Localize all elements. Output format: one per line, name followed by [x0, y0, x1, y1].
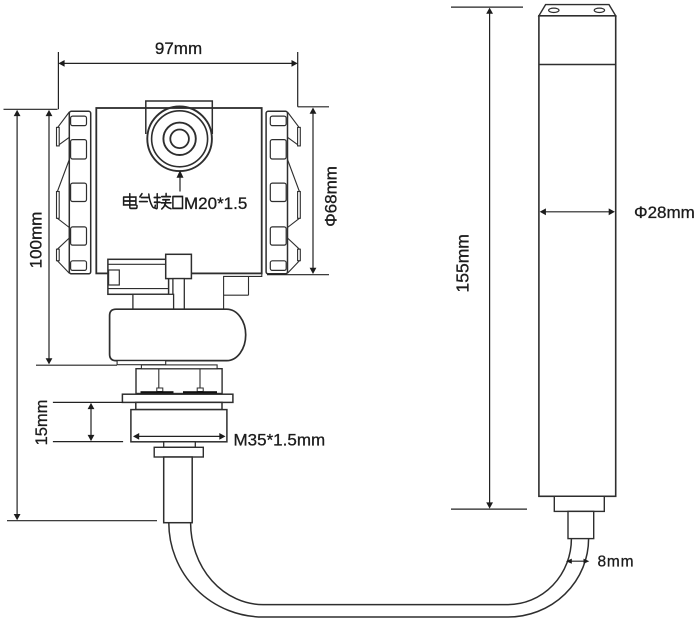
svg-text:Φ28mm: Φ28mm [634, 203, 695, 222]
svg-text:100mm: 100mm [27, 212, 46, 269]
svg-text:15mm: 15mm [33, 400, 51, 446]
svg-text:97mm: 97mm [155, 39, 202, 58]
svg-text:M20*1.5: M20*1.5 [184, 194, 247, 213]
svg-text:155mm: 155mm [452, 234, 472, 292]
svg-text:M35*1.5mm: M35*1.5mm [234, 430, 326, 449]
svg-text:8mm: 8mm [598, 554, 635, 571]
svg-text:Φ68mm: Φ68mm [321, 166, 340, 227]
